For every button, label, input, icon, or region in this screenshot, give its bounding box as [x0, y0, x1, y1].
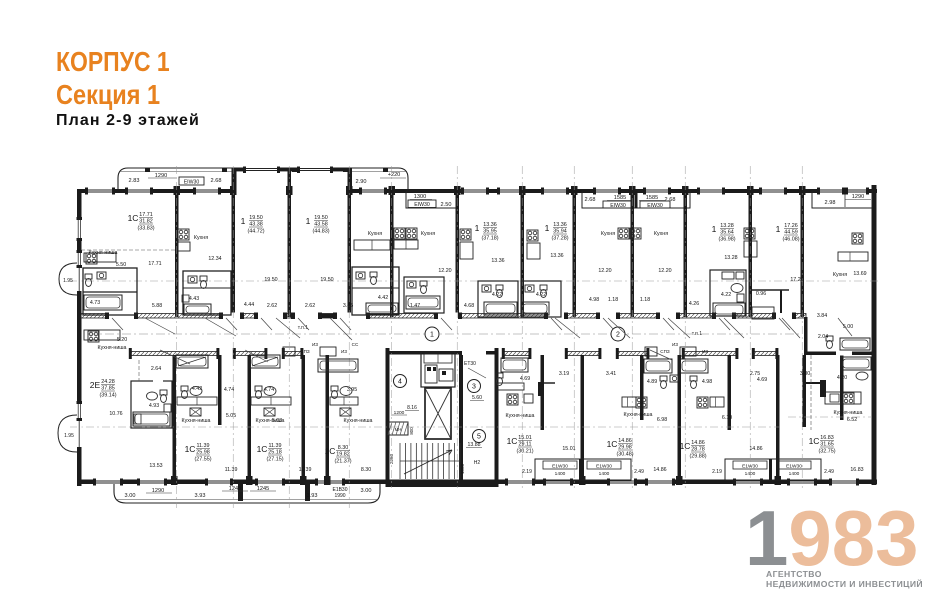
svg-text:Е1W30: Е1W30 [786, 464, 802, 470]
svg-text:11.39: 11.39 [225, 467, 238, 473]
svg-text:5: 5 [477, 433, 481, 440]
svg-text:EIW30: EIW30 [610, 203, 626, 209]
svg-text:(36.98): (36.98) [718, 237, 735, 243]
svg-text:13.36: 13.36 [553, 222, 567, 228]
svg-text:13.28: 13.28 [720, 223, 734, 229]
svg-text:+220: +220 [388, 172, 401, 178]
svg-text:(27.15): (27.15) [266, 457, 283, 463]
svg-text:Кухня-ниша: Кухня-ниша [181, 418, 210, 424]
svg-text:11.39: 11.39 [299, 467, 312, 473]
svg-text:ИЗ: ИЗ [312, 342, 318, 347]
svg-text:12.20: 12.20 [598, 268, 611, 274]
svg-text:(32.75): (32.75) [818, 449, 835, 455]
svg-text:17.26: 17.26 [784, 223, 798, 229]
svg-text:2.49: 2.49 [634, 469, 644, 475]
svg-text:(29.88): (29.88) [689, 454, 706, 460]
svg-text:(27.55): (27.55) [194, 457, 211, 463]
svg-text:1: 1 [475, 223, 480, 233]
svg-text:800: 800 [409, 427, 414, 435]
svg-text:(37.28): (37.28) [551, 236, 568, 242]
svg-text:4.68: 4.68 [464, 303, 474, 309]
svg-text:10.76: 10.76 [109, 411, 122, 417]
svg-text:3.19: 3.19 [559, 371, 569, 377]
svg-text:1990: 1990 [334, 493, 345, 499]
svg-text:4.93: 4.93 [149, 403, 159, 409]
svg-text:EIW30: EIW30 [414, 202, 430, 208]
svg-text:3.00: 3.00 [361, 488, 372, 494]
svg-text:1С: 1С [128, 213, 139, 223]
svg-text:43.58: 43.58 [314, 222, 328, 228]
svg-text:Е1W30: Е1W30 [552, 464, 568, 470]
svg-text:2.62: 2.62 [305, 303, 315, 309]
svg-text:3.84: 3.84 [817, 313, 827, 319]
svg-text:EIW30: EIW30 [184, 180, 200, 186]
svg-text:4.20: 4.20 [837, 375, 847, 381]
svg-text:(30.21): (30.21) [516, 449, 533, 455]
svg-text:4.22: 4.22 [721, 292, 731, 298]
svg-text:35.94: 35.94 [553, 229, 567, 235]
svg-text:1С: 1С [185, 444, 196, 454]
svg-text:4.42: 4.42 [378, 295, 388, 301]
svg-text:8.30: 8.30 [338, 445, 349, 451]
svg-text:2: 2 [616, 331, 620, 338]
svg-text:5.50: 5.50 [116, 262, 126, 268]
svg-text:14.86: 14.86 [618, 438, 632, 444]
svg-text:Кухня-ниша: Кухня-ниша [97, 345, 126, 351]
svg-text:13.53: 13.53 [149, 463, 162, 469]
svg-text:2.68: 2.68 [585, 197, 596, 203]
svg-text:1.95: 1.95 [64, 433, 74, 439]
svg-text:ИЗ: ИЗ [702, 349, 708, 354]
svg-text:т.п.1: т.п.1 [298, 325, 308, 331]
svg-text:1С: 1С [257, 444, 268, 454]
svg-text:1С: 1С [680, 441, 691, 451]
svg-text:2Е: 2Е [90, 380, 101, 390]
svg-text:(37.18): (37.18) [481, 236, 498, 242]
svg-text:14.86: 14.86 [691, 440, 705, 446]
svg-text:12.34: 12.34 [208, 256, 221, 262]
svg-text:4.43: 4.43 [189, 296, 199, 302]
svg-text:6.19: 6.19 [722, 415, 732, 421]
svg-text:4.69: 4.69 [520, 376, 530, 382]
svg-text:13.36: 13.36 [483, 222, 497, 228]
svg-text:Кухня-ниша: Кухня-ниша [505, 413, 534, 419]
svg-text:(44.72): (44.72) [247, 229, 264, 235]
svg-text:19.50: 19.50 [314, 215, 328, 221]
svg-text:4.74: 4.74 [224, 387, 234, 393]
svg-text:5.00: 5.00 [843, 324, 853, 330]
svg-text:6.98: 6.98 [657, 417, 667, 423]
svg-text:4.98: 4.98 [702, 379, 712, 385]
svg-text:ЕТ30: ЕТ30 [464, 361, 476, 367]
svg-text:1.18: 1.18 [608, 297, 618, 303]
svg-text:2.50: 2.50 [441, 202, 452, 208]
svg-text:24.28: 24.28 [101, 379, 115, 385]
svg-text:17.26: 17.26 [790, 277, 803, 283]
svg-text:СПЗ: СПЗ [300, 349, 310, 354]
svg-text:1400: 1400 [789, 471, 800, 477]
svg-text:2.49: 2.49 [824, 469, 834, 475]
svg-text:31.65: 31.65 [820, 442, 834, 448]
svg-text:11.39: 11.39 [268, 443, 281, 449]
svg-text:1400: 1400 [555, 471, 566, 477]
svg-text:СПЗ: СПЗ [660, 349, 670, 354]
svg-text:28.78: 28.78 [691, 447, 705, 453]
svg-text:1: 1 [712, 224, 717, 234]
svg-text:Кухня: Кухня [368, 231, 382, 237]
svg-text:3.80: 3.80 [800, 371, 810, 377]
svg-text:1050: 1050 [460, 463, 465, 474]
svg-text:14.86: 14.86 [653, 467, 666, 473]
svg-text:19.82: 19.82 [336, 452, 350, 458]
svg-text:ИЗ: ИЗ [341, 349, 347, 354]
svg-text:(21.37): (21.37) [334, 459, 351, 465]
svg-text:(46.08): (46.08) [782, 237, 799, 243]
svg-text:1: 1 [430, 331, 434, 338]
svg-text:17.71: 17.71 [148, 261, 161, 267]
svg-text:5.88: 5.88 [152, 303, 162, 309]
svg-text:13.28: 13.28 [724, 255, 737, 261]
svg-text:5.60: 5.60 [472, 395, 482, 401]
svg-text:35.64: 35.64 [720, 230, 734, 236]
svg-text:11.39: 11.39 [196, 443, 209, 449]
svg-text:Кухня: Кухня [421, 231, 435, 237]
svg-text:1С: 1С [507, 436, 518, 446]
svg-text:16.83: 16.83 [850, 467, 863, 473]
svg-text:Кухня-ниша: Кухня-ниша [623, 412, 652, 418]
svg-text:2.04: 2.04 [818, 334, 828, 340]
svg-text:2.90: 2.90 [356, 179, 367, 185]
svg-text:(33.83): (33.83) [137, 226, 154, 232]
svg-text:15.01: 15.01 [518, 435, 532, 441]
svg-text:3.00: 3.00 [125, 493, 136, 499]
svg-text:Кухня: Кухня [194, 235, 208, 241]
svg-text:29.98: 29.98 [618, 445, 632, 451]
svg-text:3.41: 3.41 [606, 371, 616, 377]
svg-text:Кухня: Кухня [601, 231, 615, 237]
svg-text:1: 1 [306, 216, 311, 226]
svg-text:2.98: 2.98 [825, 200, 836, 206]
svg-text:4: 4 [398, 378, 402, 385]
svg-text:0.96: 0.96 [756, 291, 766, 297]
svg-text:8.30: 8.30 [361, 467, 371, 473]
svg-text:1: 1 [776, 224, 781, 234]
svg-text:Кухня-ниша: Кухня-ниша [833, 410, 862, 416]
svg-text:16.83: 16.83 [820, 435, 834, 441]
svg-text:Кухня-ниша: Кухня-ниша [255, 418, 284, 424]
svg-text:1585: 1585 [646, 195, 658, 201]
svg-text:2.19: 2.19 [712, 469, 722, 475]
svg-text:13.69: 13.69 [853, 271, 866, 277]
svg-text:EIW30: EIW30 [647, 203, 663, 209]
svg-text:ИЗ: ИЗ [672, 342, 678, 347]
svg-text:13.36: 13.36 [550, 253, 563, 259]
svg-text:25.98: 25.98 [196, 450, 210, 456]
svg-text:1400: 1400 [599, 471, 610, 477]
svg-text:5.05: 5.05 [226, 413, 236, 419]
svg-text:1С: 1С [607, 439, 618, 449]
svg-text:14.86: 14.86 [749, 446, 762, 452]
svg-text:19.50: 19.50 [264, 277, 277, 283]
svg-text:1585: 1585 [614, 195, 626, 201]
svg-text:31.82: 31.82 [139, 219, 153, 225]
svg-text:1С: 1С [325, 446, 336, 456]
svg-text:4.44: 4.44 [244, 302, 254, 308]
svg-text:Н2: Н2 [474, 460, 481, 466]
svg-text:13.36: 13.36 [491, 258, 504, 264]
svg-text:1: 1 [545, 223, 550, 233]
svg-text:2.62: 2.62 [267, 303, 277, 309]
svg-text:1.47: 1.47 [410, 303, 420, 309]
svg-text:1С: 1С [809, 436, 820, 446]
svg-text:2.64: 2.64 [151, 366, 161, 372]
svg-text:4.89: 4.89 [647, 379, 657, 385]
svg-text:2.68: 2.68 [211, 178, 222, 184]
svg-text:(39.14): (39.14) [99, 393, 116, 399]
svg-text:1300: 1300 [414, 194, 426, 200]
svg-text:19.50: 19.50 [249, 215, 263, 221]
svg-text:Кухня: Кухня [833, 272, 847, 278]
svg-text:Е1W30: Е1W30 [596, 464, 612, 470]
svg-text:2.83: 2.83 [129, 178, 140, 184]
svg-text:1.18: 1.18 [640, 297, 650, 303]
svg-text:3.93: 3.93 [307, 493, 318, 499]
svg-text:8.16: 8.16 [407, 405, 417, 411]
svg-text:12.20: 12.20 [438, 268, 451, 274]
svg-text:(44.83): (44.83) [312, 229, 329, 235]
svg-text:1.95: 1.95 [63, 278, 73, 284]
svg-text:Кухня-ниша: Кухня-ниша [343, 418, 372, 424]
svg-text:4.26: 4.26 [689, 301, 699, 307]
svg-text:29.11: 29.11 [518, 442, 531, 448]
svg-text:3: 3 [472, 383, 476, 390]
svg-text:т.п.1: т.п.1 [692, 331, 702, 337]
svg-text:44.59: 44.59 [784, 230, 798, 236]
svg-text:2.19: 2.19 [522, 469, 532, 475]
svg-text:МН: МН [395, 427, 402, 432]
svg-text:35.95: 35.95 [483, 229, 497, 235]
svg-text:37.85: 37.85 [101, 386, 115, 392]
svg-text:3.93: 3.93 [195, 493, 206, 499]
svg-text:1: 1 [241, 216, 246, 226]
svg-text:25.18: 25.18 [268, 450, 282, 456]
svg-text:12.20: 12.20 [658, 268, 671, 274]
svg-text:17.71: 17.71 [139, 212, 153, 218]
svg-text:(30.48): (30.48) [616, 452, 633, 458]
svg-text:СС: СС [352, 342, 359, 347]
svg-text:6.52: 6.52 [847, 417, 857, 423]
svg-text:43.38: 43.38 [249, 222, 263, 228]
svg-text:19.50: 19.50 [320, 277, 333, 283]
svg-text:4.69: 4.69 [757, 377, 767, 383]
svg-text:1290: 1290 [852, 194, 864, 200]
svg-text:4.98: 4.98 [589, 297, 599, 303]
svg-text:Кухня: Кухня [654, 231, 668, 237]
svg-text:4.73: 4.73 [90, 300, 100, 306]
svg-text:15.01: 15.01 [562, 446, 575, 452]
